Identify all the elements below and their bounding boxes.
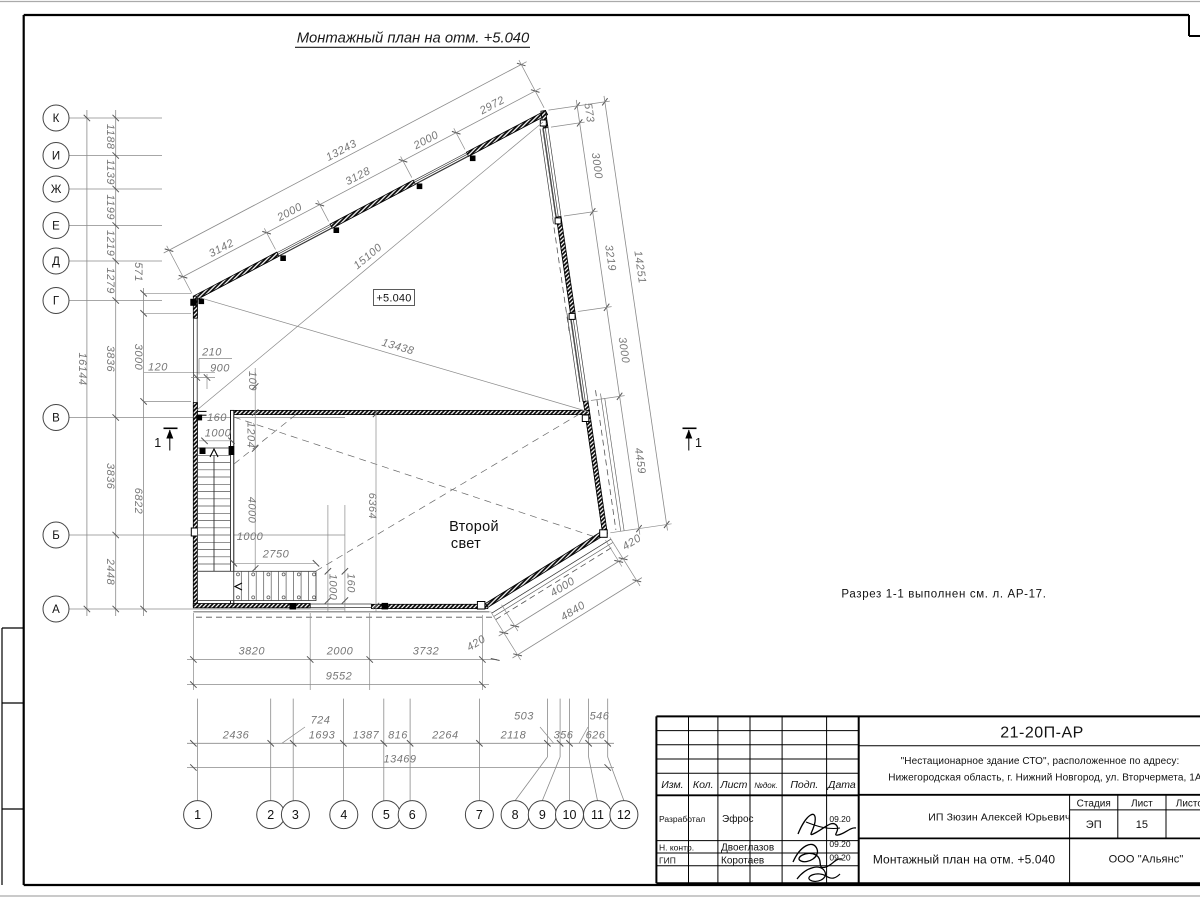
svg-text:3000: 3000 <box>132 344 144 371</box>
svg-text:Г: Г <box>53 296 60 308</box>
svg-text:571: 571 <box>132 262 144 282</box>
svg-text:13469: 13469 <box>383 753 416 765</box>
svg-text:626: 626 <box>586 730 606 742</box>
svg-text:4: 4 <box>340 808 347 822</box>
svg-text:1204: 1204 <box>245 422 257 448</box>
svg-text:7: 7 <box>476 808 483 822</box>
svg-text:3732: 3732 <box>413 646 439 658</box>
svg-text:6: 6 <box>409 808 416 822</box>
svg-text:1387: 1387 <box>353 730 380 742</box>
svg-text:6364: 6364 <box>366 493 378 519</box>
svg-text:9: 9 <box>539 808 546 822</box>
svg-text:Монтажный план на отм. +5.040: Монтажный план на отм. +5.040 <box>873 853 1056 867</box>
svg-text:Б: Б <box>52 530 60 542</box>
svg-text:Двоеглазов: Двоеглазов <box>721 843 774 854</box>
svg-text:1: 1 <box>695 436 702 450</box>
svg-text:09.20: 09.20 <box>829 853 851 863</box>
svg-text:356: 356 <box>554 730 574 742</box>
svg-text:160: 160 <box>207 412 227 424</box>
svg-text:1000: 1000 <box>237 531 264 543</box>
svg-text:ИП Зюзин Алексей Юрьевич: ИП Зюзин Алексей Юрьевич <box>928 812 1070 824</box>
svg-text:1000: 1000 <box>205 428 232 440</box>
svg-text:Н. контр.: Н. контр. <box>659 843 694 853</box>
svg-text:Стадия: Стадия <box>1077 799 1111 810</box>
svg-text:546: 546 <box>590 711 610 723</box>
svg-text:3: 3 <box>292 808 299 822</box>
svg-text:Разрез 1-1 выполнен см. л. АР-: Разрез 1-1 выполнен см. л. АР-17. <box>841 589 1046 601</box>
svg-text:А: А <box>52 604 60 616</box>
svg-text:6822: 6822 <box>132 488 144 514</box>
svg-text:1188: 1188 <box>104 124 116 150</box>
svg-text:Ж: Ж <box>51 184 62 196</box>
svg-text:Дата: Дата <box>827 779 856 791</box>
svg-text:9552: 9552 <box>326 670 352 682</box>
svg-text:2118: 2118 <box>500 730 527 742</box>
svg-text:1000: 1000 <box>327 574 339 601</box>
svg-text:Подп.: Подп. <box>790 779 818 791</box>
svg-text:Эфрос: Эфрос <box>722 813 754 825</box>
svg-text:2436: 2436 <box>222 730 250 742</box>
svg-text:21-20П-АР: 21-20П-АР <box>1000 725 1084 742</box>
svg-text:503: 503 <box>514 711 534 723</box>
svg-text:ООО "Альянс": ООО "Альянс" <box>1109 854 1184 866</box>
svg-text:Листов: Листов <box>1176 799 1200 810</box>
svg-text:3836: 3836 <box>104 463 116 490</box>
svg-text:"Нестационарное здание СТО", р: "Нестационарное здание СТО", расположенн… <box>901 756 1180 767</box>
svg-text:100: 100 <box>246 371 258 391</box>
svg-text:2750: 2750 <box>262 549 290 561</box>
svg-text:1693: 1693 <box>309 730 336 742</box>
svg-text:В: В <box>52 413 60 425</box>
svg-text:16144: 16144 <box>76 352 88 385</box>
svg-text:Д: Д <box>52 256 60 268</box>
svg-text:1279: 1279 <box>104 267 116 293</box>
svg-text:2: 2 <box>267 808 274 822</box>
svg-text:816: 816 <box>388 730 408 742</box>
svg-text:Разработал: Разработал <box>659 814 705 824</box>
svg-text:15: 15 <box>1136 819 1148 831</box>
svg-text:ЭП: ЭП <box>1086 819 1102 831</box>
svg-text:120: 120 <box>148 362 168 374</box>
svg-text:Второй: Второй <box>449 519 499 535</box>
svg-text:11: 11 <box>591 808 604 822</box>
svg-text:10: 10 <box>563 808 577 822</box>
svg-text:210: 210 <box>201 347 222 359</box>
svg-text:1199: 1199 <box>104 194 116 220</box>
svg-text:3836: 3836 <box>104 346 116 373</box>
svg-text:Монтажный план на отм. +5.040: Монтажный план на отм. +5.040 <box>297 31 530 47</box>
svg-text:свет: свет <box>451 536 481 552</box>
svg-text:Изм.: Изм. <box>661 779 683 791</box>
svg-text:№док.: №док. <box>754 781 778 790</box>
svg-text:5: 5 <box>383 808 390 822</box>
svg-text:2264: 2264 <box>431 730 458 742</box>
svg-text:12: 12 <box>617 808 631 822</box>
svg-text:Нижегородская область, г. Нижн: Нижегородская область, г. Нижний Новгоро… <box>888 772 1200 784</box>
svg-text:8: 8 <box>512 808 519 822</box>
svg-text:09.20: 09.20 <box>829 839 851 849</box>
svg-text:Кол.: Кол. <box>693 779 714 791</box>
svg-text:09.20: 09.20 <box>829 814 851 824</box>
svg-text:4000: 4000 <box>246 497 258 524</box>
svg-text:160: 160 <box>345 573 357 593</box>
svg-text:724: 724 <box>311 715 331 727</box>
svg-text:Е: Е <box>52 221 60 233</box>
svg-text:900: 900 <box>210 363 230 375</box>
svg-text:И: И <box>52 151 60 163</box>
svg-text:+5.040: +5.040 <box>376 293 411 305</box>
svg-text:1: 1 <box>194 808 201 822</box>
svg-text:1: 1 <box>154 436 161 450</box>
svg-text:1139: 1139 <box>104 159 116 185</box>
svg-text:Лист: Лист <box>1131 799 1153 810</box>
svg-text:ГИП: ГИП <box>659 856 676 866</box>
svg-text:Коротаев: Коротаев <box>721 856 764 867</box>
svg-text:2000: 2000 <box>326 646 354 658</box>
svg-text:К: К <box>53 113 60 125</box>
svg-text:Лист: Лист <box>719 779 747 791</box>
svg-text:1219: 1219 <box>104 230 116 256</box>
svg-text:2448: 2448 <box>104 558 116 586</box>
svg-text:3820: 3820 <box>239 646 266 658</box>
